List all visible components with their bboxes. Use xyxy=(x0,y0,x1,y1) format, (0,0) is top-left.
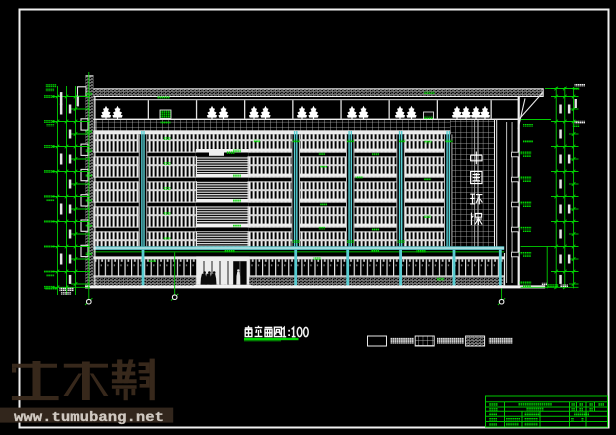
svg-text:www.tumubang.net: www.tumubang.net xyxy=(14,410,164,426)
